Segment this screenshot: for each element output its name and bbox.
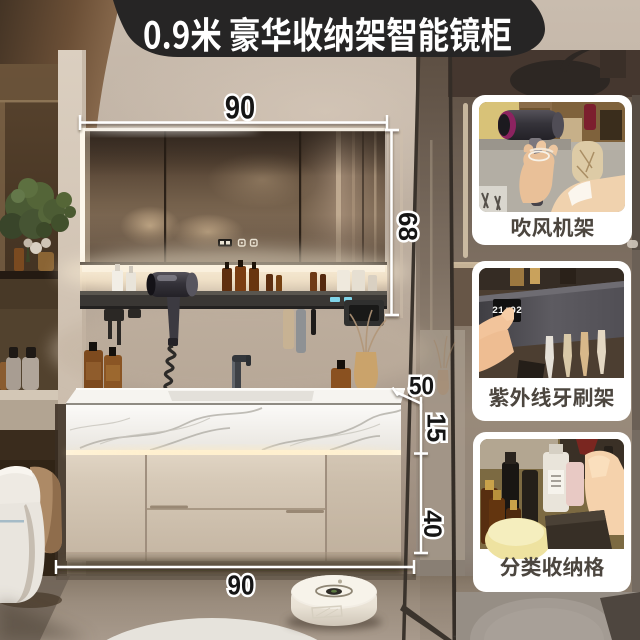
svg-text:15: 15 [421,413,451,442]
svg-text:90: 90 [228,571,255,601]
svg-text:40: 40 [418,510,446,538]
svg-text:90: 90 [225,90,255,126]
svg-text:50: 50 [409,372,434,400]
svg-text:68: 68 [393,212,423,241]
